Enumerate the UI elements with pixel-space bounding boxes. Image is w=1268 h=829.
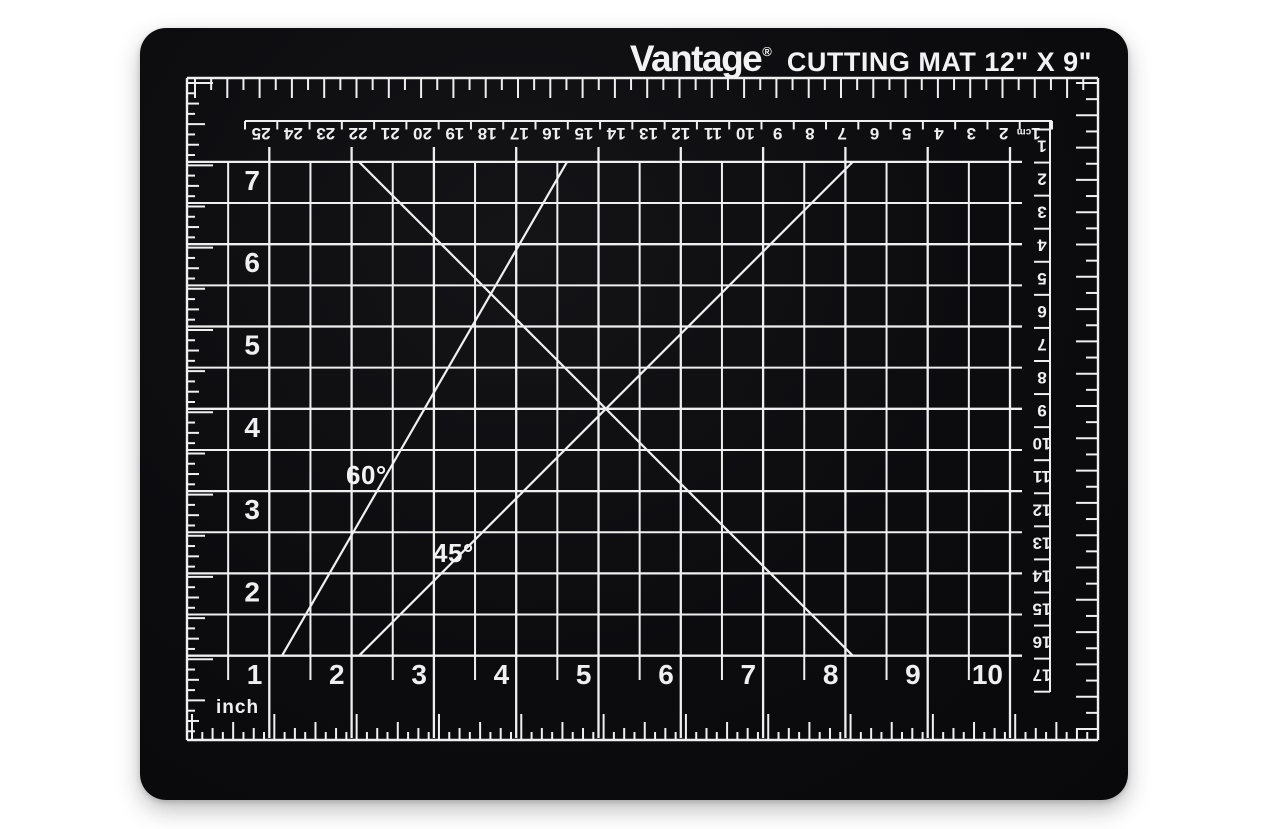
svg-text:15: 15 xyxy=(1033,599,1052,618)
bottom-inch-numbers: 12345678910 xyxy=(247,659,1003,690)
svg-text:10: 10 xyxy=(736,124,755,143)
angle-label-60: 60° xyxy=(346,460,387,491)
svg-text:2: 2 xyxy=(244,576,260,607)
svg-text:15: 15 xyxy=(574,124,593,143)
svg-text:20: 20 xyxy=(413,124,432,143)
svg-text:5: 5 xyxy=(244,330,260,361)
bottom-fine-ruler xyxy=(192,714,1087,740)
svg-text:5: 5 xyxy=(576,659,592,690)
mat-markings: 2524232221201918171615141312111098765432… xyxy=(140,28,1128,800)
svg-text:6: 6 xyxy=(244,247,260,278)
svg-text:9: 9 xyxy=(905,659,921,690)
svg-text:cm: cm xyxy=(1017,126,1032,137)
svg-text:16: 16 xyxy=(1033,633,1052,652)
left-fine-ruler xyxy=(187,83,213,731)
svg-text:11: 11 xyxy=(704,124,722,143)
svg-text:13: 13 xyxy=(639,124,658,143)
svg-text:1: 1 xyxy=(247,659,263,690)
svg-text:8: 8 xyxy=(1037,368,1046,387)
right-fine-ruler xyxy=(1076,83,1098,729)
svg-text:6: 6 xyxy=(1037,302,1046,321)
svg-text:4: 4 xyxy=(934,124,944,143)
svg-text:18: 18 xyxy=(478,124,497,143)
cutting-mat: 2524232221201918171615141312111098765432… xyxy=(140,28,1128,800)
svg-text:23: 23 xyxy=(316,124,335,143)
svg-text:5: 5 xyxy=(1037,269,1046,288)
svg-text:1: 1 xyxy=(1037,136,1046,155)
top-fine-ruler xyxy=(195,78,1083,98)
svg-text:25: 25 xyxy=(252,124,271,143)
grid-inch-lines xyxy=(187,147,1022,738)
svg-text:9: 9 xyxy=(1037,401,1046,420)
svg-text:14: 14 xyxy=(606,124,625,143)
svg-text:24: 24 xyxy=(283,124,302,143)
svg-text:6: 6 xyxy=(658,659,674,690)
svg-text:3: 3 xyxy=(967,124,976,143)
left-inch-numbers: 765432 xyxy=(244,165,260,608)
svg-text:14: 14 xyxy=(1032,566,1051,585)
svg-text:7: 7 xyxy=(741,659,757,690)
product-photo: 2524232221201918171615141312111098765432… xyxy=(0,0,1268,829)
brand-name: Vantage xyxy=(630,38,761,80)
svg-text:2: 2 xyxy=(329,659,345,690)
svg-text:4: 4 xyxy=(494,659,510,690)
svg-text:12: 12 xyxy=(671,124,690,143)
svg-text:11: 11 xyxy=(1033,467,1051,486)
svg-text:10: 10 xyxy=(1033,434,1052,453)
svg-text:5: 5 xyxy=(902,124,911,143)
svg-text:8: 8 xyxy=(805,124,814,143)
right-cm-scale: 1234567891011121314151617 xyxy=(1032,121,1051,692)
top-cm-scale: 2524232221201918171615141312111098765432… xyxy=(245,121,1052,143)
svg-text:13: 13 xyxy=(1033,533,1052,552)
svg-text:4: 4 xyxy=(244,412,260,443)
angle-label-45: 45° xyxy=(433,538,474,569)
svg-text:3: 3 xyxy=(1037,203,1046,222)
svg-text:22: 22 xyxy=(349,124,368,143)
brand-logo: Vantage® CUTTING MAT 12" X 9" xyxy=(630,38,1092,80)
svg-text:17: 17 xyxy=(1033,666,1052,685)
svg-text:21: 21 xyxy=(381,124,400,143)
svg-text:12: 12 xyxy=(1033,500,1052,519)
svg-text:3: 3 xyxy=(244,494,260,525)
svg-text:2: 2 xyxy=(999,124,1008,143)
svg-text:4: 4 xyxy=(1037,236,1047,255)
svg-text:16: 16 xyxy=(542,124,561,143)
svg-text:6: 6 xyxy=(870,124,879,143)
inch-unit-label: inch xyxy=(216,697,259,719)
svg-text:19: 19 xyxy=(445,124,464,143)
svg-text:17: 17 xyxy=(510,124,529,143)
svg-text:7: 7 xyxy=(837,124,846,143)
svg-text:7: 7 xyxy=(244,165,260,196)
svg-text:10: 10 xyxy=(972,659,1003,690)
registered-mark-icon: ® xyxy=(762,44,772,59)
svg-text:8: 8 xyxy=(823,659,839,690)
svg-text:7: 7 xyxy=(1037,335,1046,354)
svg-text:3: 3 xyxy=(411,659,427,690)
svg-text:9: 9 xyxy=(773,124,782,143)
product-title: CUTTING MAT 12" X 9" xyxy=(787,47,1092,78)
svg-text:2: 2 xyxy=(1037,170,1046,189)
